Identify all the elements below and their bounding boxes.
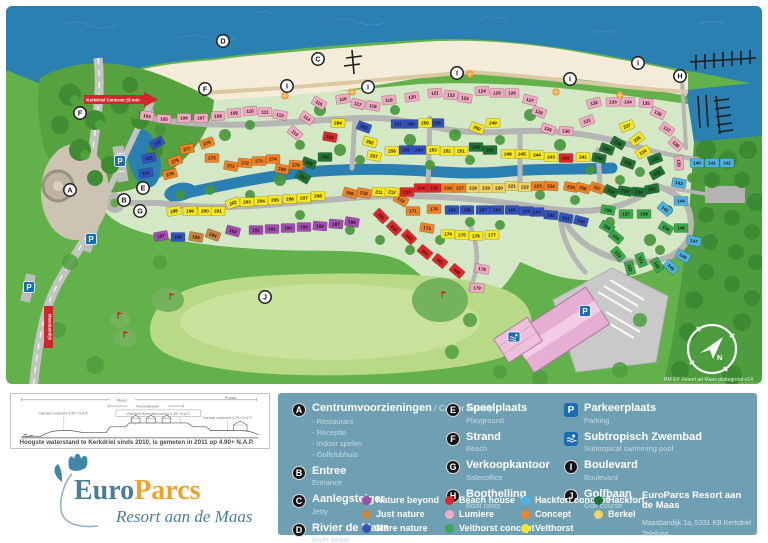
map-marker-f: F bbox=[74, 107, 86, 119]
resort-map: 1011021031041051061071081091101111121131… bbox=[0, 0, 768, 390]
map-lot-134: 134 bbox=[621, 98, 635, 107]
svg-text:134: 134 bbox=[624, 100, 632, 105]
svg-text:126: 126 bbox=[508, 91, 516, 96]
map-lot-174: 174 bbox=[441, 230, 455, 239]
concept-color-dot bbox=[445, 524, 454, 533]
map-version-caption: BM-EP Resort ad Maas-plattegrond-v14 bbox=[664, 377, 753, 383]
map-lot-254: 254 bbox=[412, 146, 426, 155]
svg-text:C: C bbox=[315, 55, 320, 64]
concept-nature-beyond: Nature beyond bbox=[362, 495, 439, 505]
svg-text:275: 275 bbox=[208, 156, 216, 161]
swimming-pool-icon bbox=[508, 332, 520, 342]
parking-icon: P bbox=[564, 403, 578, 417]
map-lot-201: 201 bbox=[211, 207, 225, 216]
map-marker-b: B bbox=[118, 194, 130, 206]
marina-basin bbox=[686, 82, 762, 142]
beach-umbrella-icon bbox=[553, 89, 560, 96]
map-lot-204: 204 bbox=[254, 197, 268, 206]
map-lot-241: 241 bbox=[576, 153, 590, 162]
diagram-label-left: Nieuwe maaiveld 4,25+ N.A.P. bbox=[39, 411, 88, 415]
map-lot-168: 168 bbox=[460, 206, 474, 215]
svg-text:217: 217 bbox=[456, 186, 464, 191]
svg-text:N: N bbox=[717, 353, 722, 362]
svg-text:171: 171 bbox=[409, 209, 417, 214]
svg-text:F: F bbox=[203, 85, 208, 94]
svg-text:179: 179 bbox=[473, 286, 481, 291]
map-lot-142: 142 bbox=[720, 159, 734, 168]
map-lot-107: 107 bbox=[194, 114, 208, 123]
logo-wordmark: EuroParcs bbox=[74, 475, 201, 506]
svg-text:D: D bbox=[220, 37, 225, 46]
svg-text:252: 252 bbox=[443, 149, 451, 154]
svg-text:141: 141 bbox=[708, 161, 716, 166]
legend-key-d: D bbox=[292, 523, 306, 537]
svg-text:P: P bbox=[88, 235, 94, 244]
concept-more-nature: More nature bbox=[362, 523, 439, 533]
svg-text:224: 224 bbox=[547, 183, 556, 189]
map-lot-171: 171 bbox=[406, 207, 420, 216]
svg-text:218: 218 bbox=[469, 186, 477, 191]
map-lot-110: 110 bbox=[243, 106, 258, 116]
svg-text:125: 125 bbox=[493, 91, 501, 96]
legend-key-i: I bbox=[564, 460, 578, 474]
map-lot-158: 158 bbox=[637, 210, 651, 219]
map-lot-208: 208 bbox=[311, 192, 325, 201]
map-lot-259: 259 bbox=[418, 119, 432, 128]
map-lot-246: 246 bbox=[501, 150, 515, 159]
map-lot-220: 220 bbox=[492, 184, 506, 193]
concept-legend-group-4: HackfortBerkel bbox=[594, 495, 645, 523]
svg-text:215: 215 bbox=[430, 186, 438, 191]
map-lot-274: 274 bbox=[266, 155, 280, 164]
concept-color-dot bbox=[362, 496, 371, 505]
parking-icon: P bbox=[115, 156, 126, 167]
svg-text:216: 216 bbox=[444, 186, 452, 191]
svg-text:170: 170 bbox=[430, 207, 438, 212]
map-lot-190: 190 bbox=[281, 224, 295, 233]
svg-text:Kerkdriel Centrum ±5 min: Kerkdriel Centrum ±5 min bbox=[86, 98, 140, 103]
svg-text:204: 204 bbox=[257, 199, 265, 204]
legend-item-speelplaats: ESpeelplaatsPlayground bbox=[446, 403, 564, 425]
svg-text:130: 130 bbox=[562, 128, 571, 134]
svg-text:106: 106 bbox=[180, 116, 188, 121]
svg-text:221: 221 bbox=[508, 184, 516, 189]
legend-key-e: E bbox=[446, 403, 460, 417]
phone-line: Telefoon bbox=[642, 530, 754, 541]
map-lot-104: 104 bbox=[139, 111, 154, 122]
concept-label: Velthorst bbox=[535, 523, 574, 533]
swimming-pool-icon bbox=[564, 432, 578, 446]
concept-velthorst: Velthorst bbox=[521, 523, 609, 533]
svg-text:A: A bbox=[67, 186, 72, 195]
svg-text:168: 168 bbox=[463, 208, 471, 213]
map-lot-191: 191 bbox=[265, 225, 279, 234]
svg-text:254: 254 bbox=[415, 148, 423, 153]
svg-text:119: 119 bbox=[385, 97, 393, 103]
svg-text:140: 140 bbox=[693, 161, 701, 166]
legend-subtitle: Entrance bbox=[312, 478, 346, 487]
concept-color-dot bbox=[362, 524, 371, 533]
concept-hackfort: Hackfort bbox=[594, 495, 645, 505]
svg-text:241: 241 bbox=[579, 155, 587, 160]
map-lot-251: 251 bbox=[454, 147, 468, 156]
map-lot-253: 253 bbox=[426, 146, 440, 155]
svg-text:I: I bbox=[456, 69, 458, 78]
svg-text:Maasbandijk: Maasbandijk bbox=[48, 314, 53, 341]
svg-text:G: G bbox=[137, 207, 143, 216]
cross-section-diagram: Maas Polder Recreatiepark Nieuwe maaivel… bbox=[10, 393, 270, 449]
map-marker-c: C bbox=[312, 53, 324, 65]
svg-text:272: 272 bbox=[241, 160, 250, 166]
map-lot-256: 256 bbox=[385, 147, 399, 156]
svg-text:213: 213 bbox=[403, 190, 411, 195]
svg-text:190: 190 bbox=[284, 226, 292, 231]
svg-text:107: 107 bbox=[197, 116, 205, 121]
svg-text:166: 166 bbox=[493, 208, 501, 213]
svg-text:274: 274 bbox=[269, 157, 277, 162]
svg-text:243: 243 bbox=[547, 155, 555, 160]
resort-name: EuroParcs Resort aan de Maas bbox=[642, 491, 754, 512]
svg-text:176: 176 bbox=[472, 234, 480, 239]
map-lot-166: 166 bbox=[490, 206, 504, 215]
legend-item-entree: BEntreeEntrance bbox=[292, 466, 444, 488]
map-lot-248: 248 bbox=[469, 143, 483, 152]
svg-text:191: 191 bbox=[268, 227, 276, 232]
map-lot-242: 242 bbox=[559, 154, 573, 163]
parking-icon: P bbox=[24, 282, 35, 293]
svg-text:I: I bbox=[569, 75, 571, 84]
svg-text:258: 258 bbox=[433, 121, 441, 126]
concept-label: Nature beyond bbox=[376, 495, 439, 505]
map-lot-252: 252 bbox=[440, 147, 454, 156]
svg-text:245: 245 bbox=[518, 152, 526, 157]
map-lot-167: 167 bbox=[476, 206, 490, 215]
map-lot-122: 122 bbox=[444, 90, 459, 100]
concept-legend-group-1: Nature beyondJust natureMore nature bbox=[362, 495, 439, 537]
concept-label: Just nature bbox=[376, 509, 425, 519]
svg-text:135: 135 bbox=[642, 100, 651, 106]
svg-text:E: E bbox=[141, 184, 146, 193]
svg-text:211: 211 bbox=[375, 189, 383, 195]
svg-text:F: F bbox=[78, 109, 83, 118]
map-lot-205: 205 bbox=[268, 196, 282, 205]
map-lot-119: 119 bbox=[382, 95, 397, 105]
svg-text:253: 253 bbox=[429, 148, 437, 153]
map-lot-223: 223 bbox=[531, 182, 545, 191]
svg-text:110: 110 bbox=[246, 108, 254, 114]
map-lot-264: 264 bbox=[331, 119, 345, 128]
svg-text:139: 139 bbox=[676, 159, 682, 168]
concept-color-dot bbox=[594, 510, 603, 519]
svg-text:264: 264 bbox=[334, 121, 342, 126]
map-lot-221: 221 bbox=[505, 182, 519, 191]
legend-title: Parkeerplaats bbox=[584, 403, 656, 415]
map-lot-116: 116 bbox=[335, 94, 350, 105]
map-lot-207: 207 bbox=[297, 194, 311, 203]
map-marker-h: H bbox=[674, 70, 686, 82]
europarcs-logo: EuroParcs Resort aan de Maas bbox=[28, 452, 263, 537]
svg-text:174: 174 bbox=[444, 232, 452, 237]
dike-sign: Maasbandijk bbox=[44, 306, 53, 348]
svg-text:260: 260 bbox=[407, 122, 415, 127]
svg-text:177: 177 bbox=[488, 233, 496, 238]
diagram-span-mid: Recreatiepark bbox=[136, 405, 159, 409]
map-lot-144: 144 bbox=[674, 197, 688, 206]
svg-text:105: 105 bbox=[160, 116, 168, 122]
map-lot-179: 179 bbox=[470, 284, 484, 293]
svg-text:I: I bbox=[637, 59, 639, 68]
legend-subtitle: Playground bbox=[466, 416, 527, 425]
map-lot-188: 188 bbox=[313, 221, 328, 231]
svg-text:273: 273 bbox=[255, 159, 263, 164]
map-lot-199: 199 bbox=[183, 207, 197, 216]
concept-color-dot bbox=[445, 496, 454, 505]
map-lot-176: 176 bbox=[469, 232, 483, 241]
map-lot-135: 135 bbox=[639, 98, 654, 108]
map-lot-230: 230 bbox=[632, 187, 647, 197]
svg-text:B: B bbox=[121, 196, 126, 205]
svg-text:169: 169 bbox=[448, 208, 456, 213]
svg-text:109: 109 bbox=[230, 110, 239, 116]
map-lot-125: 125 bbox=[490, 89, 504, 98]
address-line: Maasbandijk 1a, 5331 KB Kerkdriel bbox=[642, 519, 754, 530]
svg-text:I: I bbox=[286, 82, 288, 91]
terrain-profile bbox=[21, 423, 258, 438]
map-lot-213: 213 bbox=[400, 188, 414, 197]
map-lot-243: 243 bbox=[544, 153, 558, 162]
svg-text:111: 111 bbox=[261, 110, 269, 115]
beach-umbrella-icon bbox=[282, 93, 289, 100]
svg-text:121: 121 bbox=[431, 90, 440, 96]
map-lot-175: 175 bbox=[455, 231, 469, 240]
legend-subtitle: Parking bbox=[584, 416, 656, 425]
map-lot-245: 245 bbox=[515, 150, 529, 159]
concept-label: Berkel bbox=[608, 509, 636, 519]
map-lot-275: 275 bbox=[205, 154, 219, 163]
svg-text:270: 270 bbox=[292, 162, 301, 168]
svg-text:256: 256 bbox=[388, 149, 396, 154]
svg-text:222: 222 bbox=[521, 185, 529, 190]
svg-text:249: 249 bbox=[489, 121, 497, 126]
svg-text:214: 214 bbox=[417, 186, 425, 191]
concept-label: Concept bbox=[535, 509, 571, 519]
concept-color-dot bbox=[521, 510, 530, 519]
beach-umbrella-icon bbox=[617, 92, 624, 99]
concept-label: Beach house bbox=[459, 495, 515, 505]
legend-subtitle: Boulevard bbox=[584, 473, 638, 482]
svg-text:196: 196 bbox=[174, 235, 182, 240]
map-lot-222: 222 bbox=[518, 183, 532, 192]
map-lot-120: 120 bbox=[404, 92, 419, 103]
map-lot-162: 162 bbox=[544, 210, 559, 220]
legend-subtitle: Salesoffice bbox=[466, 473, 550, 482]
map-lot-164: 164 bbox=[519, 207, 533, 216]
map-lot-111: 111 bbox=[258, 108, 272, 117]
map-lot-260: 260 bbox=[404, 120, 418, 129]
legend-title: Verkoopkantoor bbox=[466, 460, 550, 472]
map-lot-244: 244 bbox=[530, 151, 544, 160]
map-marker-i: I bbox=[281, 80, 293, 92]
legend-key-b: B bbox=[292, 466, 306, 480]
map-marker-i: I bbox=[451, 67, 463, 79]
map-lot-146: 146 bbox=[674, 224, 688, 233]
svg-text:164: 164 bbox=[522, 209, 530, 214]
beach-umbrella-icon bbox=[467, 71, 474, 78]
map-lot-215: 215 bbox=[427, 184, 441, 193]
svg-text:223: 223 bbox=[534, 184, 542, 189]
svg-text:188: 188 bbox=[316, 223, 325, 229]
legend-title: Boulevard bbox=[584, 460, 638, 472]
map-lot-106: 106 bbox=[177, 114, 191, 123]
map-lot-224: 224 bbox=[544, 181, 559, 191]
legend-subtitle: Subtropical swimming pool bbox=[584, 444, 702, 453]
map-lot-133: 133 bbox=[606, 98, 620, 107]
svg-text:255: 255 bbox=[402, 148, 410, 153]
svg-text:165: 165 bbox=[508, 208, 516, 213]
legend-title: Speelplaats bbox=[466, 403, 527, 415]
map-lot-218: 218 bbox=[466, 184, 480, 193]
map-lot-217: 217 bbox=[453, 184, 467, 193]
svg-text:230: 230 bbox=[635, 189, 644, 195]
parking-icon: P bbox=[86, 234, 97, 245]
map-lot-169: 169 bbox=[445, 206, 459, 215]
legend-subtitle: Beach bbox=[466, 444, 501, 453]
concept-color-dot bbox=[445, 510, 454, 519]
legend-key-f: F bbox=[446, 432, 460, 446]
svg-text:144: 144 bbox=[677, 199, 685, 204]
map-lot-212: 212 bbox=[385, 187, 400, 197]
parking-icon: P bbox=[580, 306, 591, 317]
svg-text:203: 203 bbox=[243, 200, 251, 205]
map-lot-121: 121 bbox=[428, 88, 443, 98]
svg-text:189: 189 bbox=[300, 225, 308, 230]
svg-text:261: 261 bbox=[394, 122, 402, 127]
map-marker-i: I bbox=[564, 73, 576, 85]
concept-label: Lumiere bbox=[459, 509, 494, 519]
diagram-label-right: Nieuwe maaiveld 4,25+ N.A.P. bbox=[203, 416, 252, 420]
map-lot-109: 109 bbox=[227, 108, 242, 118]
svg-text:J: J bbox=[263, 293, 267, 302]
map-marker-e: E bbox=[137, 182, 149, 194]
map-lot-192: 192 bbox=[249, 226, 263, 235]
svg-text:212: 212 bbox=[388, 189, 397, 195]
map-lot-211: 211 bbox=[372, 187, 387, 197]
map-lot-140: 140 bbox=[690, 159, 704, 168]
concept-label: Hackfort bbox=[608, 495, 645, 505]
map-lot-270: 270 bbox=[289, 160, 304, 170]
concept-color-dot bbox=[521, 496, 530, 505]
map-lot-261: 261 bbox=[391, 120, 405, 129]
map-lot-196: 196 bbox=[171, 233, 185, 242]
diagram-span-left: Maas bbox=[117, 398, 127, 403]
map-marker-d: D bbox=[217, 35, 229, 47]
resort-map-page: 1011021031041051061071081091101111121131… bbox=[0, 0, 768, 543]
map-lot-126: 126 bbox=[505, 89, 519, 98]
svg-text:206: 206 bbox=[286, 197, 294, 202]
map-marker-j: J bbox=[259, 291, 271, 303]
map-lot-157: 157 bbox=[619, 210, 633, 219]
legend-item-centrumvoorzieningen: ACentrumvoorzieningen / Center Facility-… bbox=[292, 403, 444, 459]
resort-address: EuroParcs Resort aan de Maas Maasbandijk… bbox=[642, 491, 754, 541]
svg-text:142: 142 bbox=[723, 161, 731, 166]
legend-key-a: A bbox=[292, 403, 306, 417]
svg-text:246: 246 bbox=[504, 152, 512, 157]
concept-just-nature: Just nature bbox=[362, 509, 439, 519]
concept-color-dot bbox=[362, 510, 371, 519]
svg-text:187: 187 bbox=[332, 221, 341, 227]
svg-text:133: 133 bbox=[609, 100, 617, 105]
svg-text:P: P bbox=[117, 157, 123, 166]
legend-title: Subtropisch Zwembad bbox=[584, 432, 702, 444]
svg-text:175: 175 bbox=[458, 233, 466, 238]
concept-color-dot bbox=[594, 496, 603, 505]
logo-subtitle: Resort aan de Maas bbox=[115, 507, 253, 526]
concept-label: More nature bbox=[376, 523, 428, 533]
svg-text:I: I bbox=[367, 83, 369, 92]
legend-title: Strand bbox=[466, 432, 501, 444]
map-lot-130: 130 bbox=[559, 126, 574, 136]
concept-berkel: Berkel bbox=[594, 509, 645, 519]
svg-text:122: 122 bbox=[447, 92, 456, 98]
legend-item-parkeerplaats: PParkeerplaatsParking bbox=[564, 403, 754, 425]
legend-key-g: G bbox=[446, 460, 460, 474]
map-lot-105: 105 bbox=[157, 114, 172, 124]
legend-item-strand: FStrandBeach bbox=[446, 432, 564, 454]
svg-text:P: P bbox=[582, 307, 588, 316]
svg-text:167: 167 bbox=[479, 208, 487, 213]
map-lot-219: 219 bbox=[479, 184, 493, 193]
svg-text:244: 244 bbox=[533, 153, 541, 158]
map-lot-249: 249 bbox=[486, 119, 500, 128]
svg-text:200: 200 bbox=[201, 209, 209, 214]
svg-text:220: 220 bbox=[495, 186, 503, 191]
map-lot-273: 273 bbox=[252, 157, 266, 166]
legend-item-subtropisch-zwembad: Subtropisch ZwembadSubtropical swimming … bbox=[564, 432, 754, 454]
svg-text:205: 205 bbox=[271, 198, 279, 203]
legend-title: Entree bbox=[312, 466, 346, 478]
svg-text:192: 192 bbox=[252, 228, 260, 233]
map-lot-206: 206 bbox=[283, 195, 297, 204]
map-lot-203: 203 bbox=[240, 198, 254, 207]
map-lot-189: 189 bbox=[297, 223, 311, 232]
legend-panel: ACentrumvoorzieningen / Center Facility-… bbox=[278, 393, 757, 535]
map-lot-247: 247 bbox=[483, 146, 497, 155]
map-lot-170: 170 bbox=[427, 205, 441, 214]
beach-umbrella-icon bbox=[349, 89, 356, 96]
svg-text:162: 162 bbox=[547, 212, 556, 218]
svg-text:242: 242 bbox=[562, 156, 570, 161]
map-lot-139: 139 bbox=[674, 156, 684, 171]
map-lot-141: 141 bbox=[705, 159, 719, 168]
svg-text:163: 163 bbox=[533, 210, 541, 215]
map-marker-g: G bbox=[134, 205, 146, 217]
map-lot-187: 187 bbox=[329, 219, 344, 229]
svg-text:266: 266 bbox=[321, 155, 329, 160]
svg-text:146: 146 bbox=[677, 226, 685, 231]
map-lot-272: 272 bbox=[238, 158, 253, 168]
svg-text:247: 247 bbox=[486, 148, 494, 153]
svg-text:259: 259 bbox=[421, 121, 429, 126]
svg-text:124: 124 bbox=[478, 88, 486, 93]
svg-text:158: 158 bbox=[640, 212, 648, 217]
map-marker-i: I bbox=[362, 81, 374, 93]
svg-text:208: 208 bbox=[314, 194, 322, 199]
map-marker-a: A bbox=[64, 184, 76, 196]
map-lot-165: 165 bbox=[505, 206, 519, 215]
svg-text:108: 108 bbox=[214, 113, 222, 118]
map-lot-108: 108 bbox=[211, 111, 225, 121]
legend-key-c: C bbox=[292, 494, 306, 508]
